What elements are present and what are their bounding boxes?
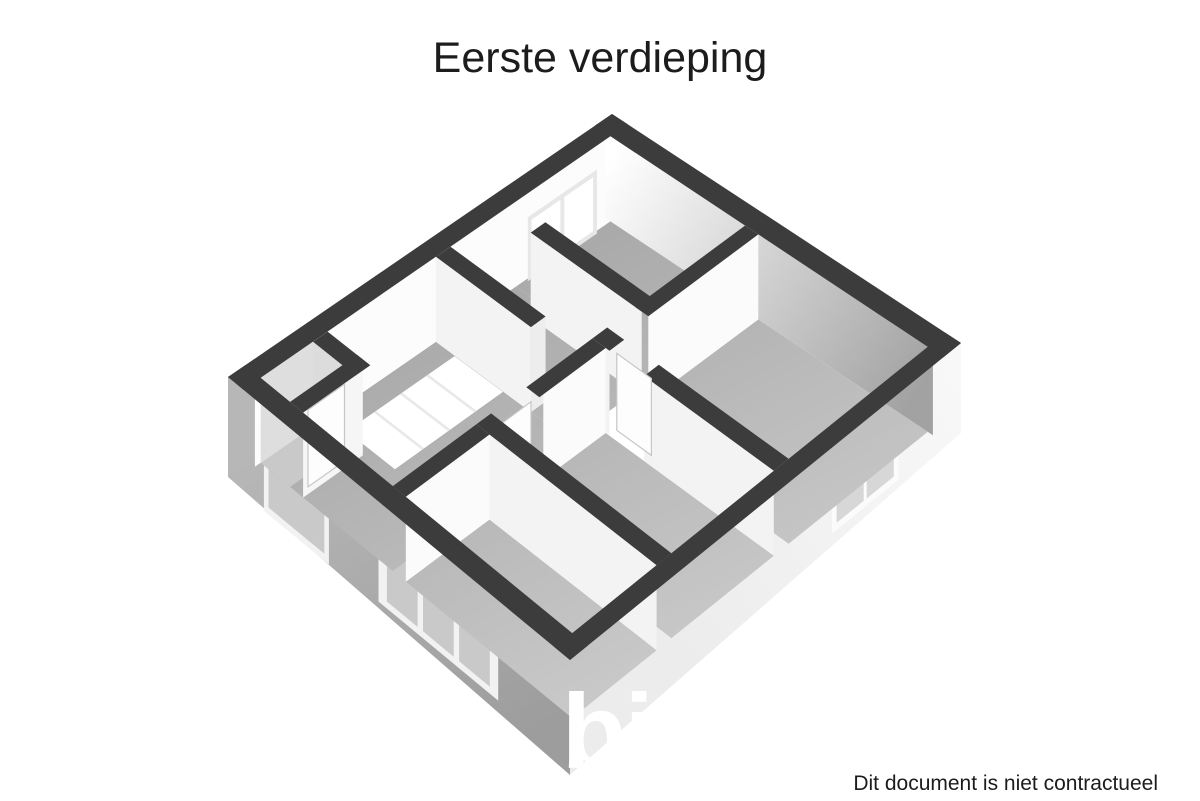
watermark-text: biddit — [562, 673, 839, 791]
disclaimer-text: Dit document is niet contractueel — [853, 772, 1158, 796]
floor-plan-3d-render: biddit — [0, 0, 1200, 801]
floor-plan-page: biddit Eerste verdieping Dit document is… — [0, 0, 1200, 801]
page-title: Eerste verdieping — [0, 34, 1200, 83]
